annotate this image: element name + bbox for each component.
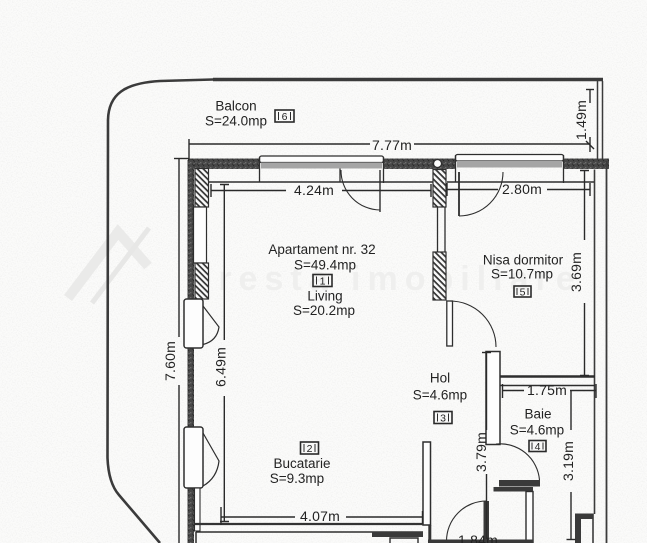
- svg-text:4.24m: 4.24m: [294, 182, 334, 198]
- svg-text:S=10.7mp: S=10.7mp: [491, 267, 553, 282]
- svg-text:Balcon: Balcon: [215, 99, 256, 114]
- svg-text:Baie: Baie: [524, 407, 551, 422]
- svg-text:Nisa dormitor: Nisa dormitor: [483, 253, 564, 268]
- svg-text:6: 6: [282, 111, 288, 123]
- svg-text:Bucatarie: Bucatarie: [273, 456, 330, 471]
- svg-text:Apartament nr. 32: Apartament nr. 32: [268, 242, 375, 257]
- svg-text:S=20.2mp: S=20.2mp: [293, 303, 355, 318]
- svg-text:3.69m: 3.69m: [568, 252, 584, 292]
- svg-text:1.75m: 1.75m: [527, 382, 567, 398]
- svg-text:S=4.6mp: S=4.6mp: [510, 423, 564, 438]
- svg-text:S=9.3mp: S=9.3mp: [270, 471, 324, 486]
- svg-text:1.84m: 1.84m: [458, 532, 498, 543]
- svg-text:5: 5: [520, 286, 526, 298]
- svg-text:7.77m: 7.77m: [372, 137, 412, 153]
- svg-text:3.79m: 3.79m: [473, 432, 489, 472]
- svg-text:Living: Living: [307, 289, 342, 304]
- svg-text:3: 3: [440, 412, 446, 424]
- svg-text:2.80m: 2.80m: [502, 181, 542, 197]
- svg-text:1.49m: 1.49m: [573, 100, 589, 140]
- svg-text:S=4.6mp: S=4.6mp: [413, 388, 467, 403]
- svg-text:4.07m: 4.07m: [300, 508, 340, 524]
- svg-text:S=24.0mp: S=24.0mp: [205, 114, 267, 129]
- svg-text:Hol: Hol: [430, 371, 450, 386]
- svg-text:4: 4: [535, 441, 541, 453]
- svg-text:7.60m: 7.60m: [162, 341, 178, 381]
- svg-text:3.19m: 3.19m: [560, 441, 576, 481]
- svg-text:S=49.4mp: S=49.4mp: [294, 258, 356, 273]
- svg-text:6.49m: 6.49m: [213, 347, 229, 387]
- svg-text:1: 1: [320, 275, 326, 287]
- svg-text:2: 2: [307, 443, 313, 455]
